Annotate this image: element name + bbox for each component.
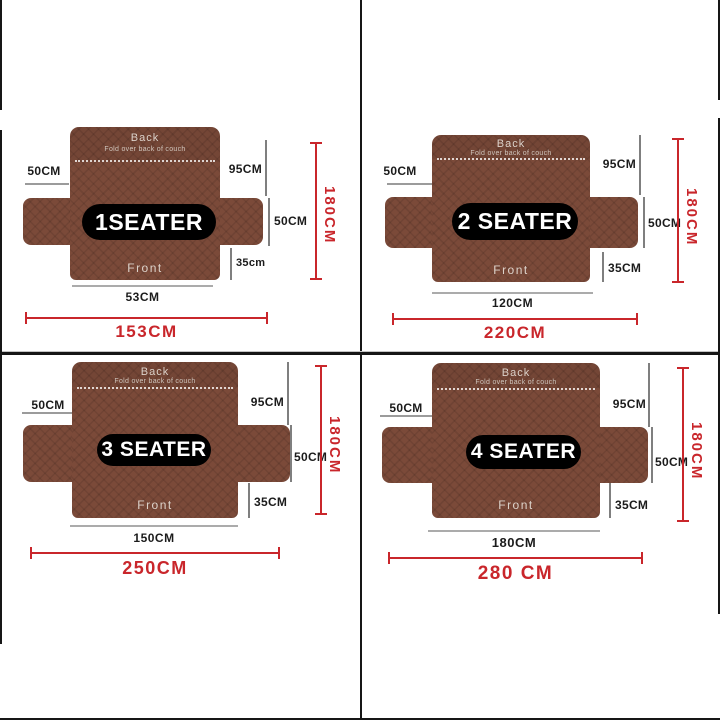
back-height-label: 95CM xyxy=(246,395,284,409)
arm-width-line xyxy=(22,412,72,414)
total-width-arrow xyxy=(388,557,643,559)
left-frame-edge xyxy=(0,354,2,644)
quadrant-4-seater: Back Fold over back of couch Front 4 SEA… xyxy=(360,352,720,720)
back-sublabel: Fold over back of couch xyxy=(432,379,600,386)
front-drop-label: 35cm xyxy=(236,257,265,269)
seat-width-label: 180CM xyxy=(428,535,600,550)
total-width-label: 220CM xyxy=(392,323,638,343)
side-height-line xyxy=(643,197,645,248)
total-height-arrow xyxy=(677,138,679,283)
total-width-arrow xyxy=(392,318,638,320)
front-drop-line xyxy=(230,248,232,280)
vertical-divider xyxy=(360,0,362,720)
arm-width-label: 50CM xyxy=(24,398,72,412)
total-height-arrow xyxy=(320,365,322,515)
front-label: Front xyxy=(432,263,590,277)
back-label: Back xyxy=(432,367,600,379)
right-armrest-flap xyxy=(237,425,290,482)
front-drop-line xyxy=(609,483,611,518)
right-armrest-flap xyxy=(589,197,638,248)
back-height-line xyxy=(639,135,641,195)
back-sublabel: Fold over back of couch xyxy=(72,378,238,385)
total-height-label: 180CM xyxy=(326,416,343,474)
seat-width-line xyxy=(432,292,593,294)
seat-width-line xyxy=(428,530,600,532)
back-height-label: 95CM xyxy=(608,397,646,411)
seater-badge: 4 SEATER xyxy=(466,435,581,469)
side-height-line xyxy=(290,425,292,482)
quadrant-2-seater: Back Fold over back of couch Front 2 SEA… xyxy=(360,0,720,352)
left-armrest-flap xyxy=(382,427,432,483)
seat-width-line xyxy=(72,285,213,287)
total-width-arrow xyxy=(25,317,268,319)
total-width-arrow xyxy=(30,552,280,554)
fold-dotted-line xyxy=(437,158,585,160)
back-height-line xyxy=(287,362,289,425)
arm-width-line xyxy=(25,183,69,185)
total-height-label: 180CM xyxy=(683,188,700,246)
front-label: Front xyxy=(432,498,600,512)
left-armrest-flap xyxy=(23,198,71,245)
arm-width-label: 50CM xyxy=(16,164,72,178)
front-drop-label: 35CM xyxy=(254,495,287,509)
sofa-cover-size-chart: Back Fold over back of couch Front 1SEAT… xyxy=(0,0,720,720)
arm-width-label: 50CM xyxy=(372,164,428,178)
right-armrest-flap xyxy=(599,427,648,483)
front-label: Front xyxy=(70,261,220,275)
total-width-label: 250CM xyxy=(30,558,280,579)
fold-dotted-line xyxy=(77,387,233,389)
seat-width-label: 53CM xyxy=(72,290,213,304)
seat-width-label: 150CM xyxy=(70,531,238,545)
left-frame-edge xyxy=(0,0,2,110)
left-frame-edge xyxy=(0,130,2,352)
total-height-label: 180CM xyxy=(688,422,705,480)
arm-width-line xyxy=(387,183,432,185)
total-height-arrow xyxy=(682,367,684,522)
left-armrest-flap xyxy=(385,197,433,248)
total-height-label: 180CM xyxy=(321,186,338,244)
seat-width-line xyxy=(70,525,238,527)
back-sublabel: Fold over back of couch xyxy=(70,146,220,153)
horizontal-divider xyxy=(0,351,720,355)
seater-badge: 1SEATER xyxy=(82,204,216,240)
right-armrest-flap xyxy=(219,198,263,245)
fold-dotted-line xyxy=(437,388,595,390)
side-height-line xyxy=(268,198,270,246)
back-sublabel: Fold over back of couch xyxy=(432,150,590,157)
fold-dotted-line xyxy=(75,160,215,162)
back-height-label: 95CM xyxy=(598,157,636,171)
total-height-arrow xyxy=(315,142,317,280)
seater-badge: 3 SEATER xyxy=(97,434,211,466)
front-drop-line xyxy=(602,252,604,282)
back-label: Back xyxy=(72,366,238,378)
side-height-line xyxy=(651,427,653,483)
back-height-label: 95CM xyxy=(224,162,262,176)
front-label: Front xyxy=(72,498,238,512)
front-drop-line xyxy=(248,483,250,518)
left-armrest-flap xyxy=(23,425,73,482)
total-width-label: 280 CM xyxy=(388,563,643,585)
quadrant-1-seater: Back Fold over back of couch Front 1SEAT… xyxy=(0,0,360,352)
quadrant-3-seater: Back Fold over back of couch Front 3 SEA… xyxy=(0,352,360,720)
side-height-label: 50CM xyxy=(294,450,327,464)
back-label: Back xyxy=(70,132,220,144)
total-width-label: 153CM xyxy=(25,322,268,342)
arm-width-label: 50CM xyxy=(382,401,430,415)
seater-badge: 2 SEATER xyxy=(452,203,578,240)
arm-width-line xyxy=(380,415,432,417)
seat-width-label: 120CM xyxy=(432,296,593,310)
back-label: Back xyxy=(432,138,590,150)
back-height-line xyxy=(265,140,267,196)
front-drop-label: 35CM xyxy=(608,261,641,275)
back-height-line xyxy=(648,363,650,427)
side-height-label: 50CM xyxy=(274,214,307,228)
front-drop-label: 35CM xyxy=(615,498,648,512)
